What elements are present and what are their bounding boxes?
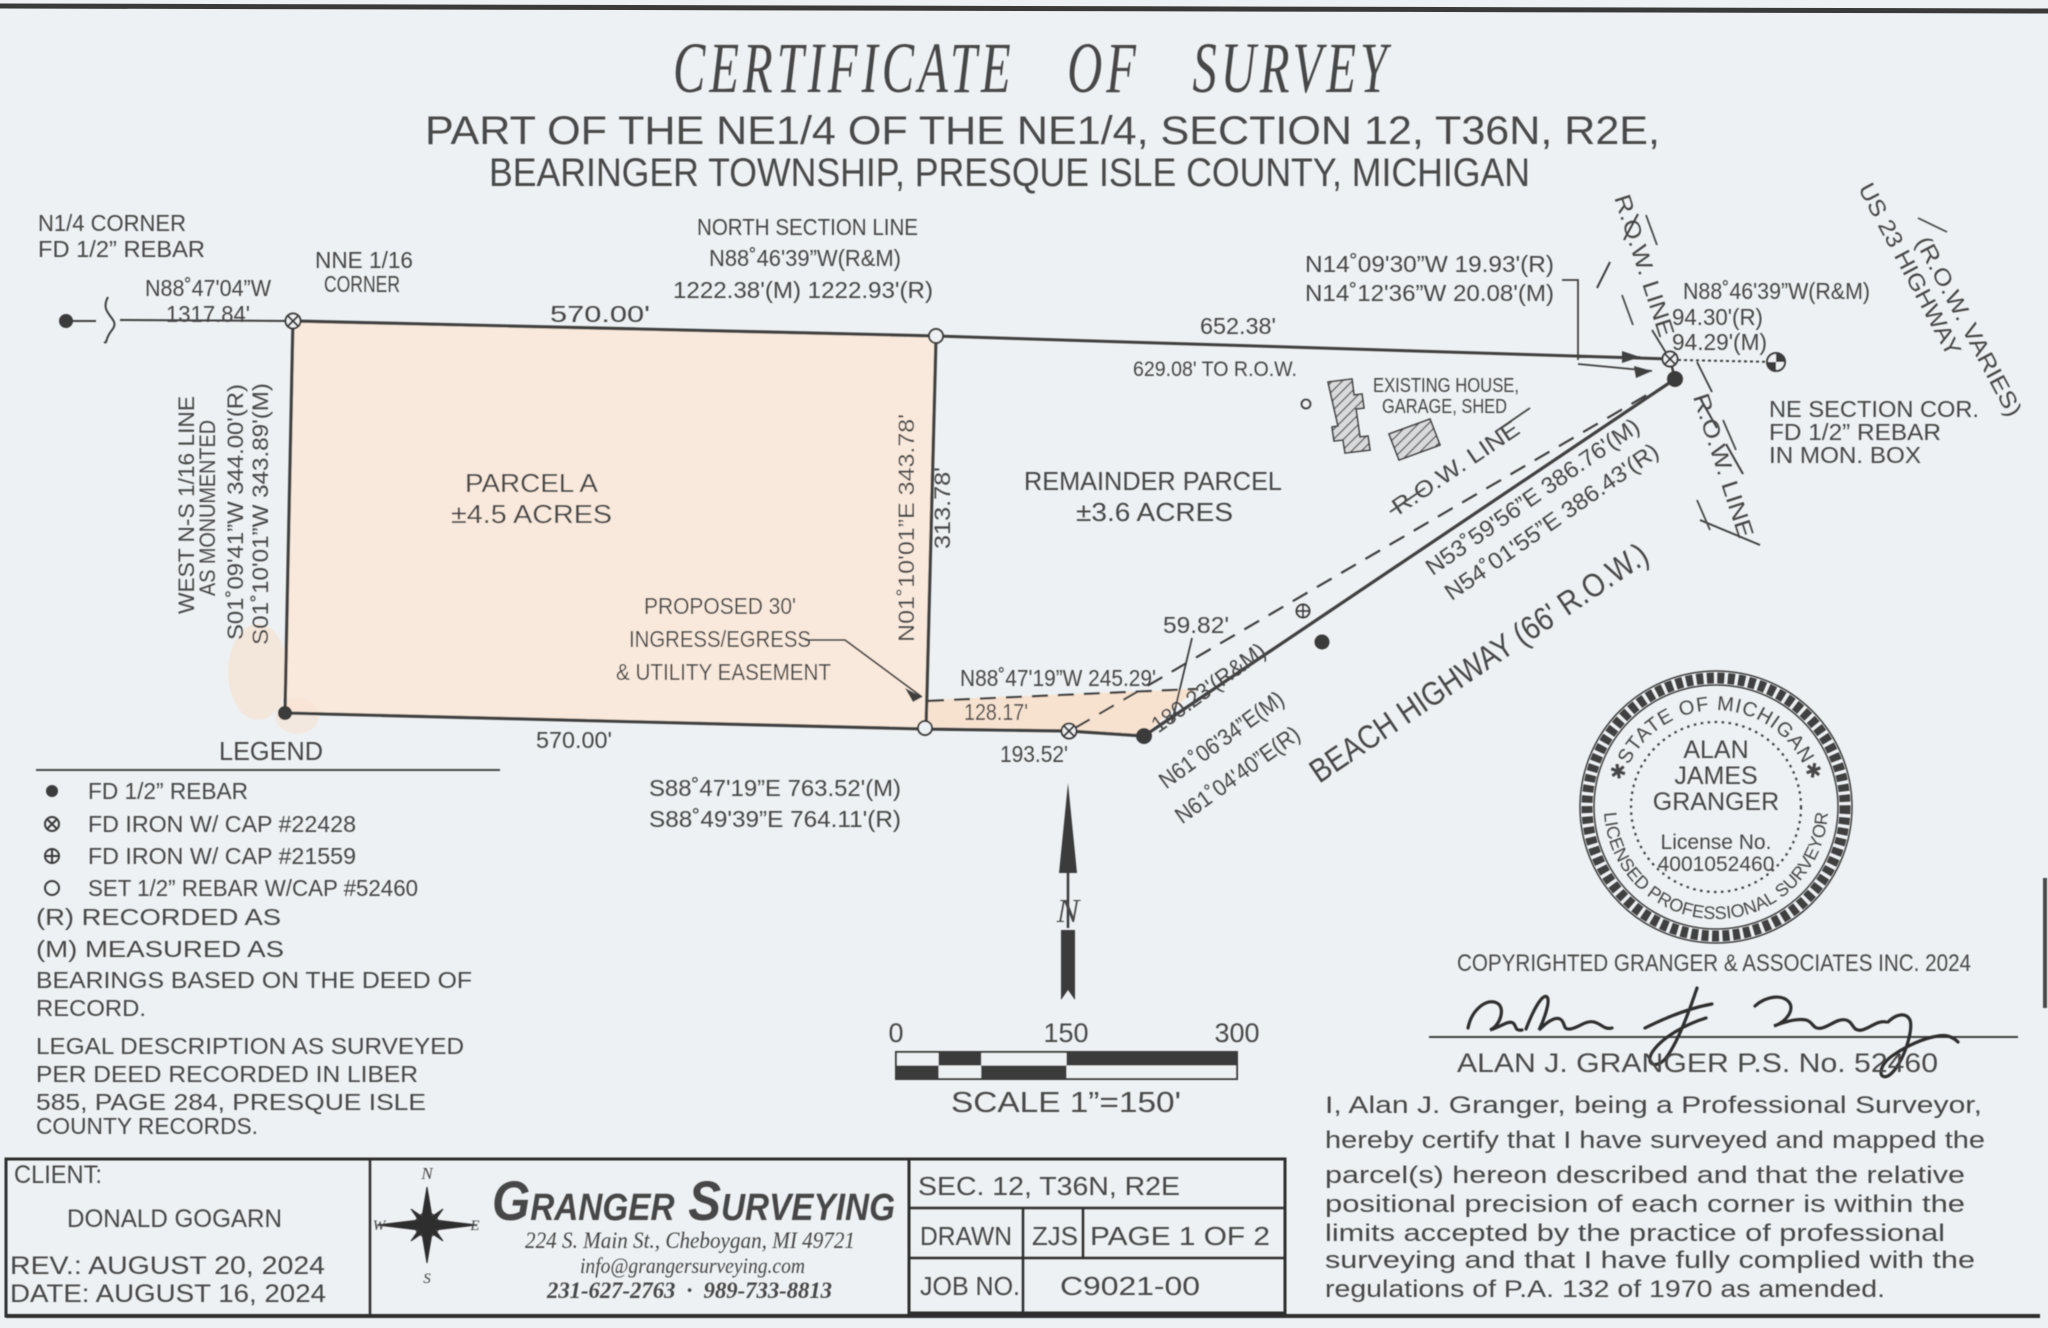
svg-text:PROPOSED 30': PROPOSED 30' — [644, 593, 796, 619]
svg-text:DRAWN: DRAWN — [920, 1221, 1012, 1251]
svg-text:231-627-2763 · 989-733-8813: 231-627-2763 · 989-733-8813 — [546, 1278, 832, 1303]
svg-text:S88˚49'39”E 764.11'(R): S88˚49'39”E 764.11'(R) — [649, 806, 901, 832]
svg-text:surveying and that I have: surveying and that I have fully complied… — [1325, 1247, 1975, 1274]
svg-text:94.29'(M): 94.29'(M) — [1672, 329, 1767, 355]
svg-text:& UTILITY EASEMENT: & UTILITY EASEMENT — [616, 659, 831, 685]
svg-text:ALAN: ALAN — [1683, 736, 1748, 764]
svg-text:128.17': 128.17' — [964, 699, 1028, 725]
svg-text:N: N — [420, 1164, 434, 1183]
svg-text:BEARINGS BASED ON THE DEED OF: BEARINGS BASED ON THE DEED OF — [36, 967, 472, 993]
svg-text:E: E — [469, 1218, 479, 1234]
svg-text:PER DEED RECORDED IN LIBER: PER DEED RECORDED IN LIBER — [36, 1061, 418, 1087]
svg-text:629.08' TO R.O.W.: 629.08' TO R.O.W. — [1133, 358, 1297, 381]
svg-text:License No.: License No. — [1661, 831, 1772, 854]
svg-text:4001052460: 4001052460 — [1658, 853, 1775, 876]
svg-text:LEGAL DESCRIPTION AS SURVEYED: LEGAL DESCRIPTION AS SURVEYED — [36, 1033, 464, 1059]
svg-text:570.00': 570.00' — [536, 727, 612, 753]
svg-text:parcel(s) hereon described: parcel(s) hereon described and that the … — [1325, 1162, 1965, 1189]
svg-text:N88˚47'04”W: N88˚47'04”W — [145, 275, 271, 301]
svg-text:193.52': 193.52' — [1000, 741, 1068, 767]
svg-text:1317.84': 1317.84' — [166, 301, 250, 327]
svg-text:94.30'(R): 94.30'(R) — [1672, 304, 1763, 330]
svg-text:(R) RECORDED AS: (R) RECORDED AS — [36, 904, 281, 930]
svg-text:FD IRON W/ CAP #21559: FD IRON W/ CAP #21559 — [88, 843, 356, 869]
svg-text:RECORD.: RECORD. — [36, 995, 146, 1021]
svg-text:COUNTY RECORDS.: COUNTY RECORDS. — [36, 1113, 258, 1139]
svg-text:59.82': 59.82' — [1163, 612, 1229, 638]
svg-text:N88˚47'19”W 245.29': N88˚47'19”W 245.29' — [960, 665, 1156, 691]
svg-text:N88˚46'39”W(R&M): N88˚46'39”W(R&M) — [709, 245, 901, 271]
svg-text:150: 150 — [1043, 1018, 1088, 1048]
svg-text:COPYRIGHTED GRANGER & ASSOC: COPYRIGHTED GRANGER & ASSOCIATES INC. 20… — [1457, 950, 1971, 977]
svg-text:IN MON. BOX: IN MON. BOX — [1769, 442, 1921, 468]
svg-text:CERTIFICATE OF SURVEY: CERTIFICATE OF SURVEY — [673, 28, 1392, 108]
svg-text:LEGEND: LEGEND — [219, 736, 323, 766]
svg-text:SCALE 1”=150': SCALE 1”=150' — [951, 1087, 1181, 1119]
svg-text:FD 1/2” REBAR: FD 1/2” REBAR — [38, 236, 205, 262]
svg-text:AS MONUMENTED: AS MONUMENTED — [195, 420, 220, 596]
svg-text:N14˚09'30”W 19.93'(R): N14˚09'30”W 19.93'(R) — [1305, 251, 1554, 277]
svg-text:SET 1/2” REBAR W/CAP #52460: SET 1/2” REBAR W/CAP #52460 — [88, 875, 418, 901]
svg-text:JOB NO.: JOB NO. — [920, 1271, 1020, 1301]
svg-text:570.00': 570.00' — [550, 301, 650, 327]
svg-text:CORNER: CORNER — [324, 271, 400, 297]
svg-text:JAMES: JAMES — [1674, 762, 1757, 790]
svg-text:0: 0 — [888, 1018, 903, 1048]
svg-text:PAGE 1 OF 2: PAGE 1 OF 2 — [1090, 1221, 1270, 1251]
svg-text:N: N — [1056, 893, 1082, 930]
svg-text:regulations of P.A. 132 of: regulations of P.A. 132 of 1970 as amend… — [1325, 1276, 1885, 1303]
svg-text:EXISTING HOUSE,: EXISTING HOUSE, — [1373, 375, 1519, 397]
svg-text:ZJS: ZJS — [1032, 1221, 1078, 1251]
svg-text:S88˚47'19”E 763.52'(M): S88˚47'19”E 763.52'(M) — [649, 775, 901, 801]
svg-text:N88˚46'39”W(R&M): N88˚46'39”W(R&M) — [1683, 278, 1870, 304]
svg-text:N14˚12'36”W 20.08'(M): N14˚12'36”W 20.08'(M) — [1305, 280, 1554, 306]
svg-text:652.38': 652.38' — [1200, 313, 1276, 339]
svg-text:hereby certify that I have: hereby certify that I have surveyed and … — [1325, 1127, 1985, 1154]
svg-text:info@grangersurveying.com: info@grangersurveying.com — [580, 1253, 805, 1278]
svg-text:W: W — [373, 1218, 387, 1234]
svg-text:(M) MEASURED AS: (M) MEASURED AS — [36, 936, 284, 962]
svg-text:±4.5 ACRES: ±4.5 ACRES — [451, 499, 612, 529]
svg-text:FD 1/2” REBAR: FD 1/2” REBAR — [88, 778, 248, 804]
svg-text:±3.6 ACRES: ±3.6 ACRES — [1076, 497, 1233, 527]
svg-text:GRANGER: GRANGER — [1653, 788, 1779, 816]
svg-text:PARCEL A: PARCEL A — [465, 468, 599, 498]
svg-text:REV.: AUGUST 20, 2024: REV.: AUGUST 20, 2024 — [10, 1252, 325, 1280]
svg-text:313.78': 313.78' — [930, 467, 955, 549]
svg-text:PART OF THE NE1/4 OF THE NE1/4: PART OF THE NE1/4 OF THE NE1/4, SECTION … — [425, 109, 1660, 153]
svg-text:585, PAGE 284, PRESQUE ISLE: 585, PAGE 284, PRESQUE ISLE — [36, 1089, 426, 1115]
svg-text:I, Alan J. Granger, being: I, Alan J. Granger, being a Professional… — [1325, 1092, 1982, 1119]
svg-text:NORTH SECTION LINE: NORTH SECTION LINE — [697, 214, 918, 240]
svg-text:SEC. 12, T36N, R2E: SEC. 12, T36N, R2E — [918, 1171, 1180, 1201]
svg-text:S01˚09'41”W 344.00'(R): S01˚09'41”W 344.00'(R) — [223, 384, 248, 640]
svg-text:BEARINGER TOWNSHIP, PRESQUE IS: BEARINGER TOWNSHIP, PRESQUE ISLE COUNTY,… — [489, 151, 1530, 195]
svg-text:300: 300 — [1214, 1018, 1259, 1048]
svg-text:INGRESS/EGRESS: INGRESS/EGRESS — [629, 626, 811, 652]
svg-text:DATE: AUGUST 16, 2024: DATE: AUGUST 16, 2024 — [10, 1280, 326, 1308]
svg-text:C9021-00: C9021-00 — [1060, 1271, 1200, 1301]
svg-text:FD IRON W/ CAP #22428: FD IRON W/ CAP #22428 — [88, 811, 356, 837]
svg-text:ALAN J. GRANGER P.S.: ALAN J. GRANGER P.S. No. 52460 — [1457, 1048, 1938, 1078]
svg-text:NNE 1/16: NNE 1/16 — [315, 247, 413, 273]
svg-text:N01˚10'01”E 343.78': N01˚10'01”E 343.78' — [894, 414, 919, 642]
svg-text:1222.38'(M) 1222.93'(R): 1222.38'(M) 1222.93'(R) — [673, 277, 933, 303]
svg-text:S01˚10'01”W 343.89'(M): S01˚10'01”W 343.89'(M) — [248, 383, 273, 645]
svg-text:positional precision of eac: positional precision of each corner is w… — [1325, 1191, 1965, 1218]
svg-text:S: S — [423, 1271, 431, 1287]
svg-text:limits accepted by the pra: limits accepted by the practice of profe… — [1325, 1220, 1945, 1247]
svg-text:DONALD GOGARN: DONALD GOGARN — [67, 1205, 282, 1233]
svg-text:REMAINDER PARCEL: REMAINDER PARCEL — [1024, 466, 1282, 496]
svg-text:224 S. Main St., Cheboygan, MI: 224 S. Main St., Cheboygan, MI 49721 — [525, 1228, 855, 1253]
svg-text:GARAGE, SHED: GARAGE, SHED — [1382, 396, 1507, 418]
svg-text:CLIENT:: CLIENT: — [14, 1161, 102, 1189]
svg-text:N1/4 CORNER: N1/4 CORNER — [38, 210, 186, 236]
